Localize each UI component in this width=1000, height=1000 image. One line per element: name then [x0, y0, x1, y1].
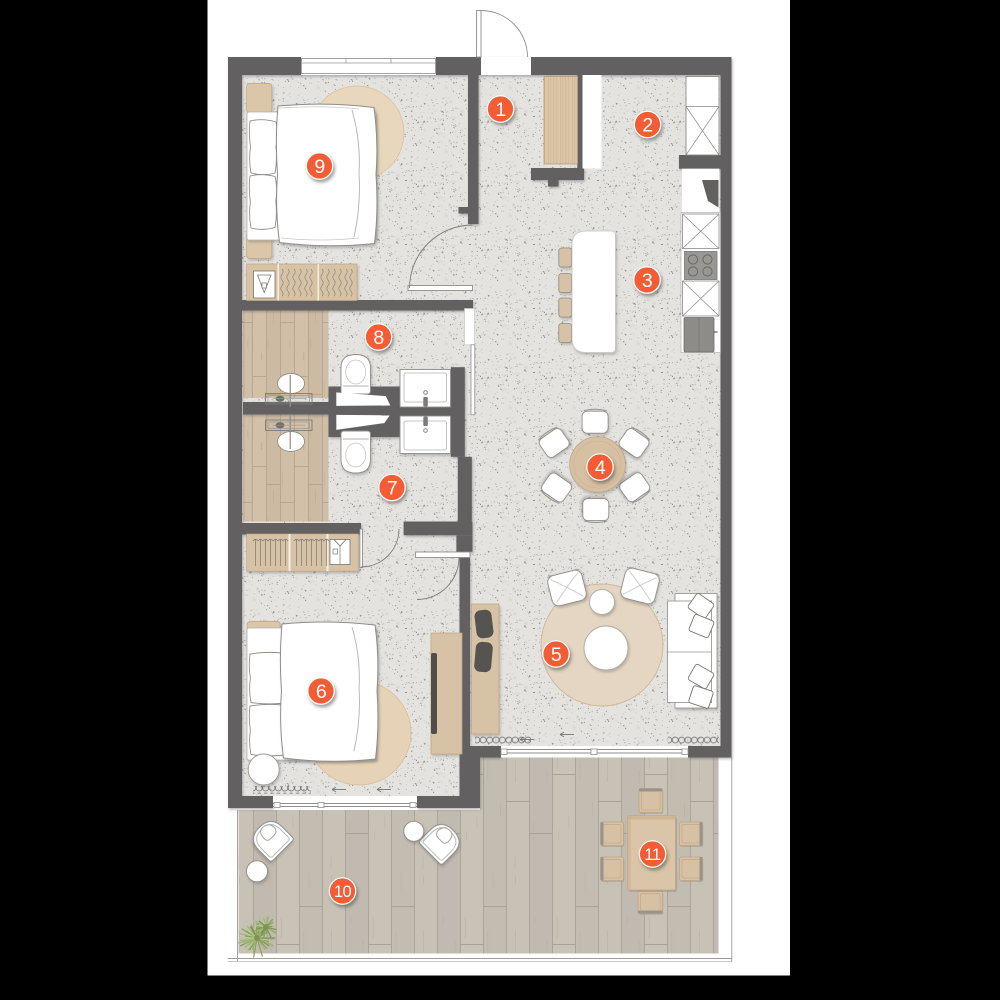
svg-text:6: 6	[316, 681, 326, 703]
svg-text:10: 10	[334, 883, 352, 901]
svg-text:5: 5	[551, 644, 562, 666]
svg-text:1: 1	[495, 99, 505, 121]
svg-text:4: 4	[595, 457, 606, 479]
svg-text:9: 9	[314, 156, 324, 178]
svg-text:3: 3	[642, 270, 652, 292]
svg-text:7: 7	[387, 478, 397, 500]
svg-text:8: 8	[373, 327, 383, 349]
svg-text:11: 11	[644, 846, 660, 864]
svg-text:2: 2	[642, 115, 652, 137]
